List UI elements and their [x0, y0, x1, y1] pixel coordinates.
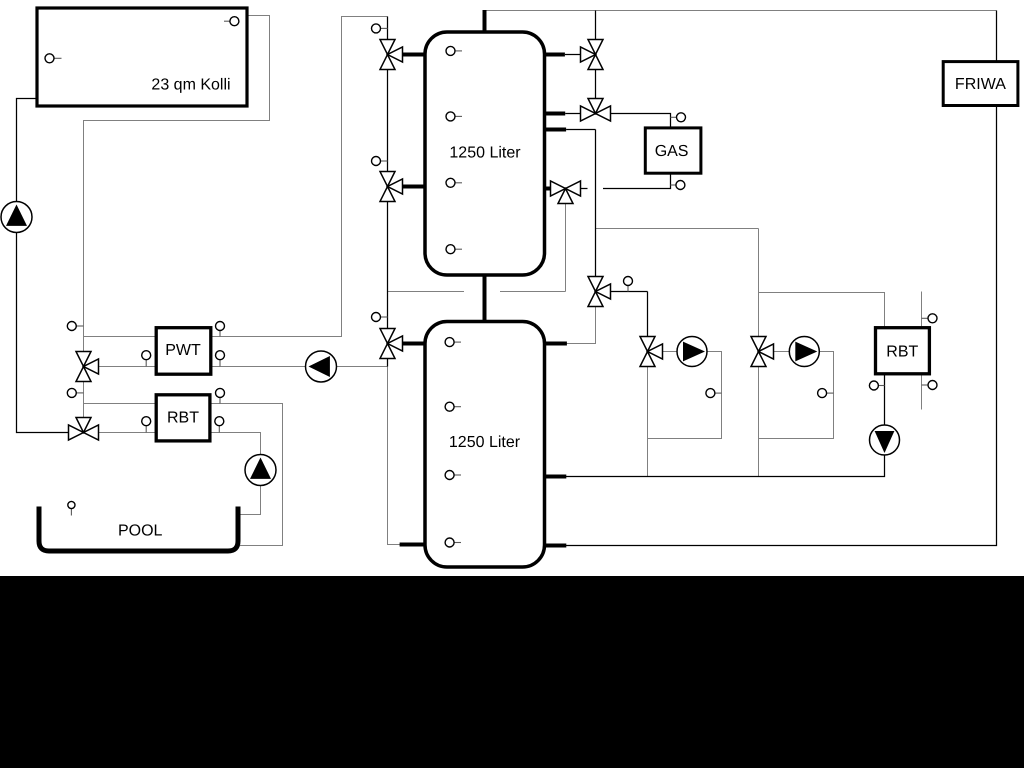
svg-text:FRIWA: FRIWA	[955, 76, 1006, 93]
svg-text:PWT: PWT	[165, 342, 201, 359]
svg-text:1250 Liter: 1250 Liter	[449, 145, 521, 162]
svg-text:GAS: GAS	[655, 143, 689, 160]
svg-text:23 qm Kolli: 23 qm Kolli	[151, 77, 230, 94]
svg-text:1250 Liter: 1250 Liter	[449, 434, 521, 451]
svg-text:RBT: RBT	[167, 410, 199, 427]
svg-text:POOL: POOL	[118, 522, 163, 539]
svg-text:RBT: RBT	[886, 343, 918, 360]
